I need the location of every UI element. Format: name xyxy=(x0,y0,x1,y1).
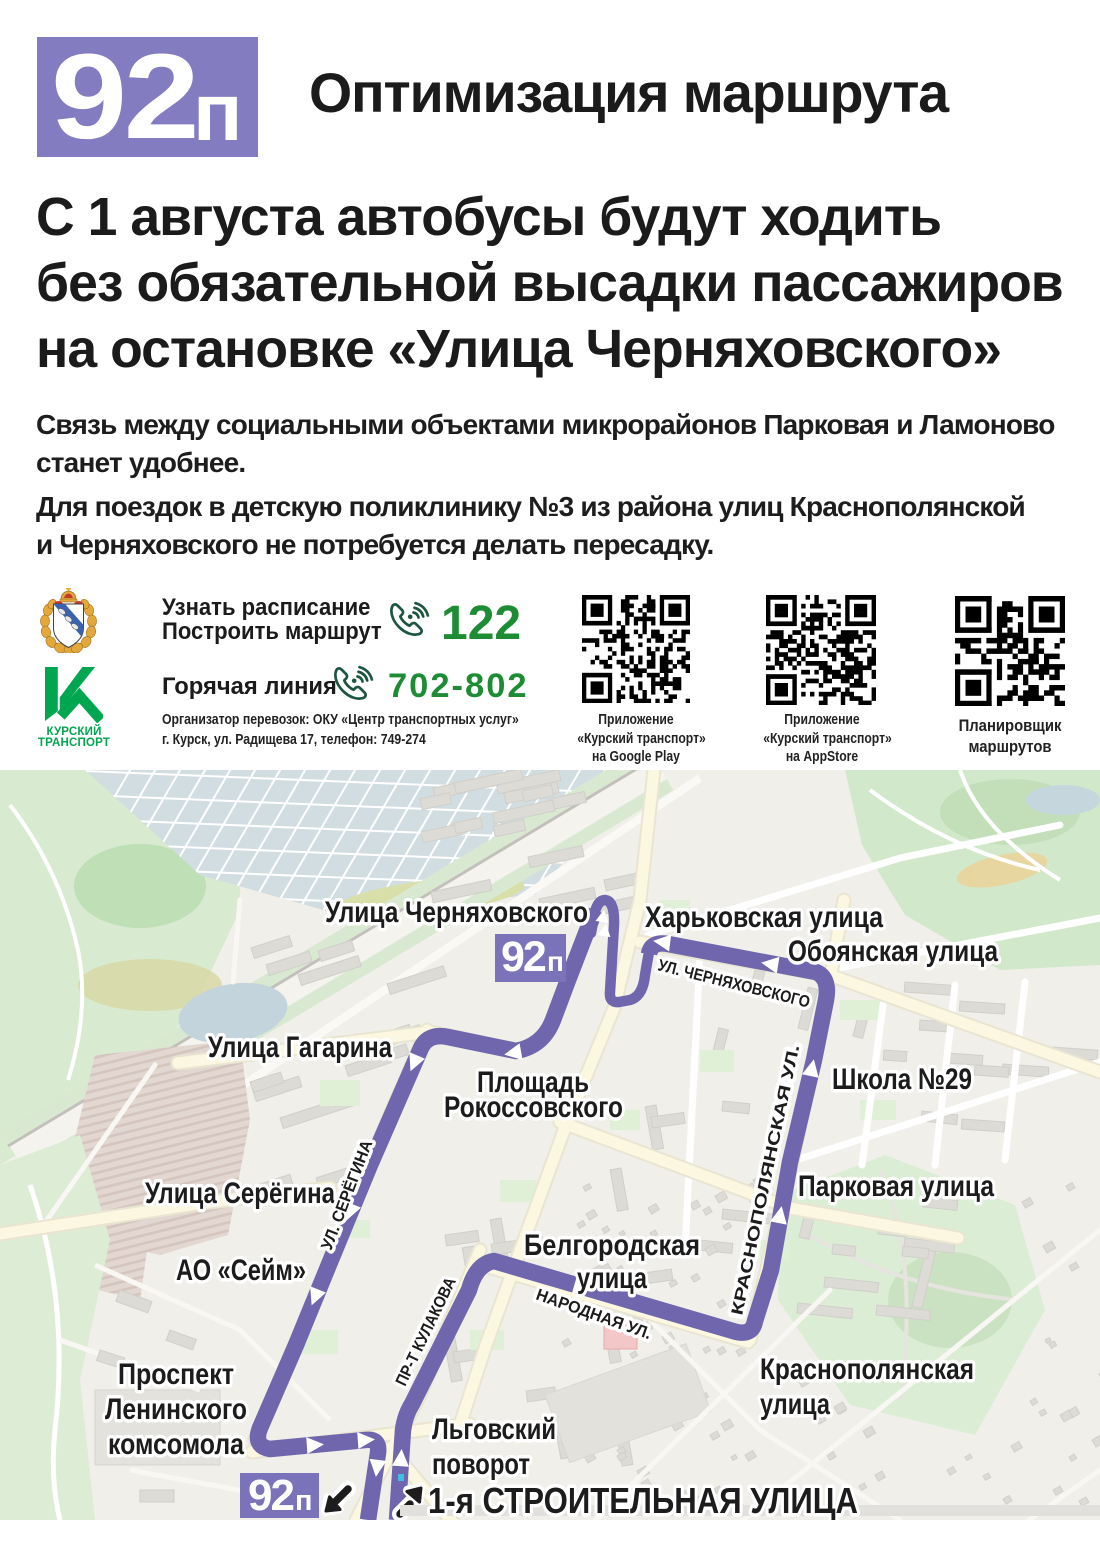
svg-text:Рокоссовского: Рокоссовского xyxy=(444,1091,623,1124)
svg-text:п: п xyxy=(547,946,564,977)
svg-text:Ленинского: Ленинского xyxy=(105,1393,247,1426)
svg-text:п: п xyxy=(295,1485,313,1517)
svg-text:Обоянская улица: Обоянская улица xyxy=(788,935,998,968)
svg-text:Улица Серёгина: Улица Серёгина xyxy=(145,1177,335,1210)
svg-text:улица: улица xyxy=(577,1262,647,1295)
svg-text:92: 92 xyxy=(501,933,546,981)
svg-text:Улица Черняховского: Улица Черняховского xyxy=(325,896,588,929)
svg-text:поворот: поворот xyxy=(432,1448,530,1481)
svg-text:Харьковская улица: Харьковская улица xyxy=(645,901,883,934)
svg-text:Школа №29: Школа №29 xyxy=(832,1063,972,1096)
svg-text:Льговский: Льговский xyxy=(432,1413,556,1446)
svg-text:92: 92 xyxy=(248,1471,293,1520)
svg-text:АО «Сейм»: АО «Сейм» xyxy=(176,1254,306,1287)
svg-text:Краснополянская: Краснополянская xyxy=(760,1353,974,1386)
svg-text:Проспект: Проспект xyxy=(118,1358,234,1391)
svg-text:улица: улица xyxy=(760,1388,830,1421)
svg-text:1-я СТРОИТЕЛЬНАЯ УЛИЦА: 1-я СТРОИТЕЛЬНАЯ УЛИЦА xyxy=(428,1480,858,1520)
svg-text:Белгородская: Белгородская xyxy=(524,1229,700,1262)
svg-text:Улица Гагарина: Улица Гагарина xyxy=(208,1031,392,1064)
svg-text:Парковая улица: Парковая улица xyxy=(798,1170,994,1203)
svg-text:комсомола: комсомола xyxy=(108,1428,244,1461)
